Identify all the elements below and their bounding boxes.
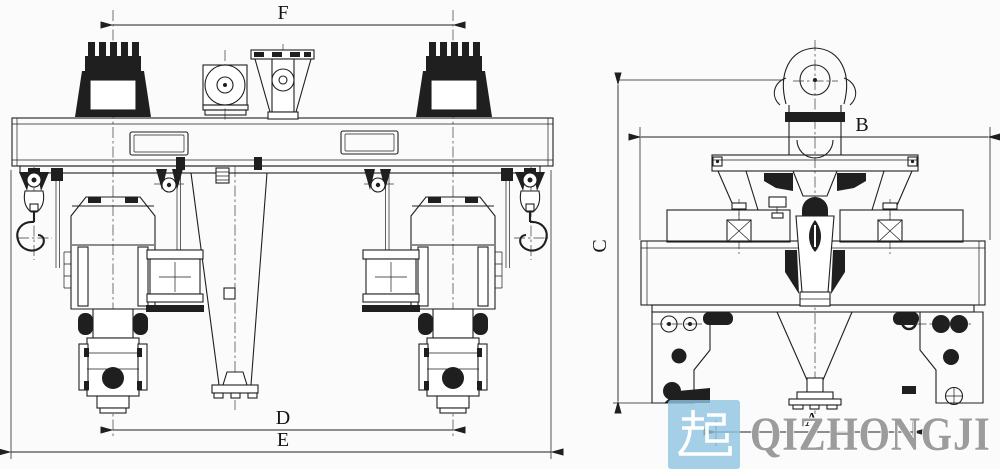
- side-view: B C A: [589, 40, 990, 446]
- hoist-unit-right: [362, 197, 502, 413]
- trolley-frame-girder: [12, 118, 553, 173]
- front-view: F D E: [11, 2, 553, 459]
- hanger-bracket-left: [156, 169, 183, 192]
- funnel-foot: [777, 312, 852, 409]
- end-truck-left: [652, 312, 710, 403]
- dimension-D: D: [113, 407, 453, 430]
- top-sheave-block: [203, 65, 248, 115]
- dimension-B-label: B: [855, 114, 868, 136]
- watermark-brand-text: QIZHONGJI: [750, 408, 990, 461]
- dimension-F-label: F: [277, 2, 288, 24]
- brake-motor-left: [75, 42, 151, 117]
- end-truck-right: [902, 312, 983, 405]
- dimension-F: F: [113, 2, 453, 25]
- brake-motor-right: [416, 42, 492, 117]
- technical-drawing-canvas: F D E: [0, 0, 1000, 469]
- top-yoke-bracket: [251, 50, 314, 119]
- dimension-C-label: C: [589, 239, 611, 252]
- rope-triangle-assembly: [191, 168, 267, 398]
- suspension-rods: [51, 168, 513, 293]
- dimension-D-label: D: [276, 407, 290, 429]
- watermark: QIZHONGJI: [668, 400, 990, 469]
- crane-trolley-drawing: F D E: [0, 0, 1000, 469]
- hoist-unit-left: [64, 197, 204, 413]
- watermark-logo-box: [668, 400, 740, 469]
- hanger-bracket-right: [364, 169, 391, 192]
- dimension-E-label: E: [277, 429, 289, 451]
